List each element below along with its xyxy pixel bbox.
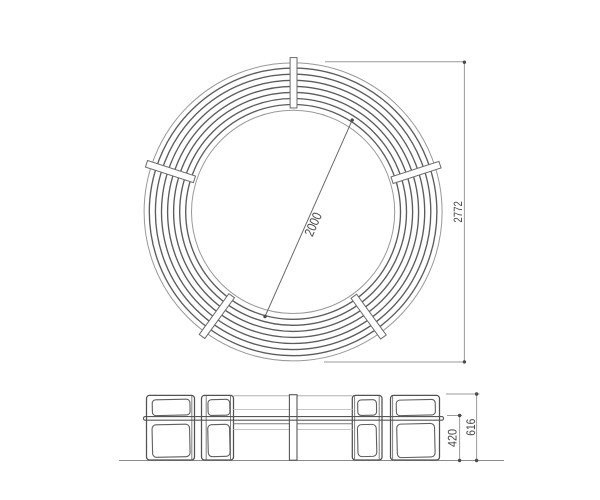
svg-text:420: 420 [445, 429, 459, 447]
svg-text:2772: 2772 [451, 201, 465, 223]
svg-text:616: 616 [464, 419, 478, 436]
svg-text:2000: 2000 [301, 210, 325, 238]
